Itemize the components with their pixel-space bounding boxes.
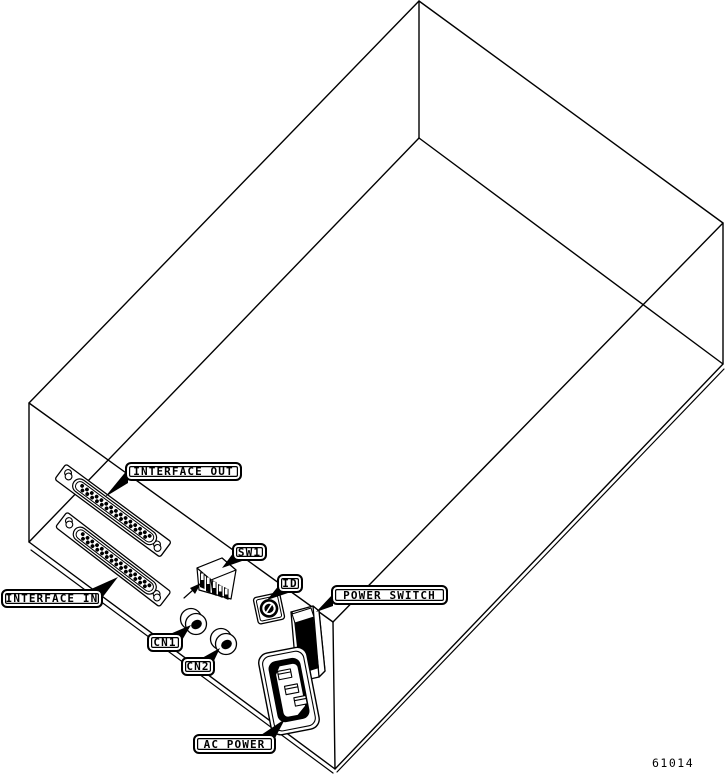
callout-cn1: CN1: [147, 633, 183, 652]
direction-arrow-icon: [184, 583, 201, 598]
callout-sw1-text: SW1: [238, 546, 261, 559]
figure-canvas: INTERFACE OUT INTERFACE IN SW1 ID POWER …: [0, 0, 726, 777]
callout-power-switch-text: POWER SWITCH: [343, 589, 436, 602]
callout-cn1-text: CN1: [153, 636, 176, 649]
figure-number: 61014: [652, 756, 694, 770]
box-outline: [29, 1, 724, 773]
callout-sw1: SW1: [232, 543, 267, 561]
figure-number-text: 61014: [652, 756, 694, 770]
callout-interface-in-text: INTERFACE IN: [6, 592, 99, 605]
callout-interface-out-text: INTERFACE OUT: [133, 465, 233, 478]
cn2-round-jack: [211, 629, 237, 655]
id-rotary-switch: [253, 592, 285, 624]
callout-id-text: ID: [282, 577, 297, 590]
callout-cn2: CN2: [181, 657, 215, 676]
callout-power-switch: POWER SWITCH: [331, 585, 448, 605]
callout-interface-out: INTERFACE OUT: [125, 462, 242, 481]
callout-id: ID: [277, 574, 303, 593]
callout-ac-power-text: AC POWER: [204, 738, 266, 751]
callout-interface-in: INTERFACE IN: [1, 589, 103, 608]
enclosure-line-art: [0, 0, 726, 777]
callout-cn2-text: CN2: [186, 660, 209, 673]
callout-ac-power: AC POWER: [193, 734, 276, 754]
